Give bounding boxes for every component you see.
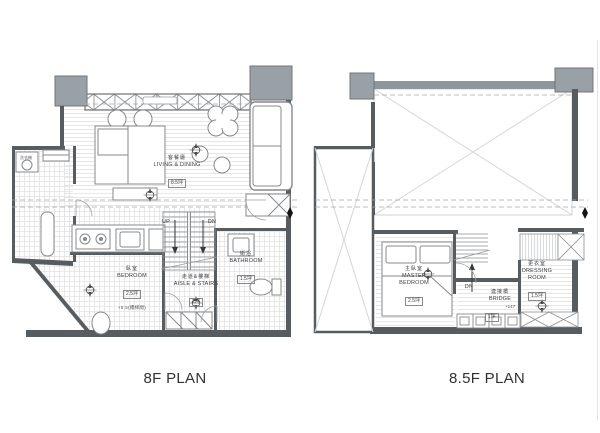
room-area-badge: 2坪 (189, 298, 203, 307)
floor-plan-image: 客餐廳 LIVING & DINING 8.5坪 UP DN 臥室 BEDROO… (0, 0, 600, 433)
flower-table (208, 106, 238, 136)
void-above-living (374, 89, 572, 215)
room-name-en: LIVING & DINING (142, 162, 212, 169)
tv-cabinet (246, 194, 290, 216)
room-area-badge: 1.5坪 (528, 292, 546, 301)
room-note: +147 (505, 304, 515, 310)
elevator-core (315, 148, 373, 332)
room-name-zh: 更衣室 (505, 261, 569, 268)
room-name-en: BEDROOM (100, 273, 164, 280)
room-label-master-bedroom: 主臥室 MASTER BEDROOM 2.5坪 (382, 266, 446, 309)
plan-title-8-5f: 8.5F PLAN (427, 370, 547, 387)
room-label-dressing-room: 更衣室 DRESSING ROOM 1.5坪 (505, 261, 569, 304)
section-marker-icon (582, 207, 588, 219)
image-edge-line (597, 40, 598, 420)
room-area-badge: 2.5坪 (405, 297, 423, 306)
room-label-living-dining: 客餐廳 LIVING & DINING 8.5坪 (142, 155, 212, 190)
beam (374, 81, 555, 89)
washing-machine-label: 洗衣機 (14, 155, 38, 161)
room-label-bathroom: 衛浴 BATHROOM 1.5坪 (214, 251, 278, 286)
drawing-8-5f (310, 62, 600, 347)
room-area-badge: 8.5坪 (168, 179, 186, 188)
room-note: +5.5(樓梯間) (100, 305, 164, 311)
room-name-en: DRESSING ROOM (519, 268, 555, 282)
room-area-badge: 1.5坪 (237, 275, 255, 284)
plan-title-8f: 8F PLAN (115, 370, 235, 387)
stair-up-label: UP (158, 219, 174, 225)
room-name-en: MASTER BEDROOM (396, 273, 432, 287)
window-sill-item (143, 97, 177, 104)
room-name-en: BATHROOM (214, 258, 278, 265)
closet (166, 312, 212, 329)
room-area-badge: 2.5坪 (123, 290, 141, 299)
room-name-zh: 主臥室 (382, 266, 446, 273)
stair-down-label: DN (204, 219, 220, 225)
kitchen-counter (72, 225, 165, 252)
bedroom-rug (92, 312, 110, 334)
room-label-bedroom: 臥室 BEDROOM 2.5坪 +5.5(樓梯間) (100, 266, 164, 311)
sofa (250, 102, 292, 190)
room-area-badge: 1坪 (485, 313, 499, 322)
